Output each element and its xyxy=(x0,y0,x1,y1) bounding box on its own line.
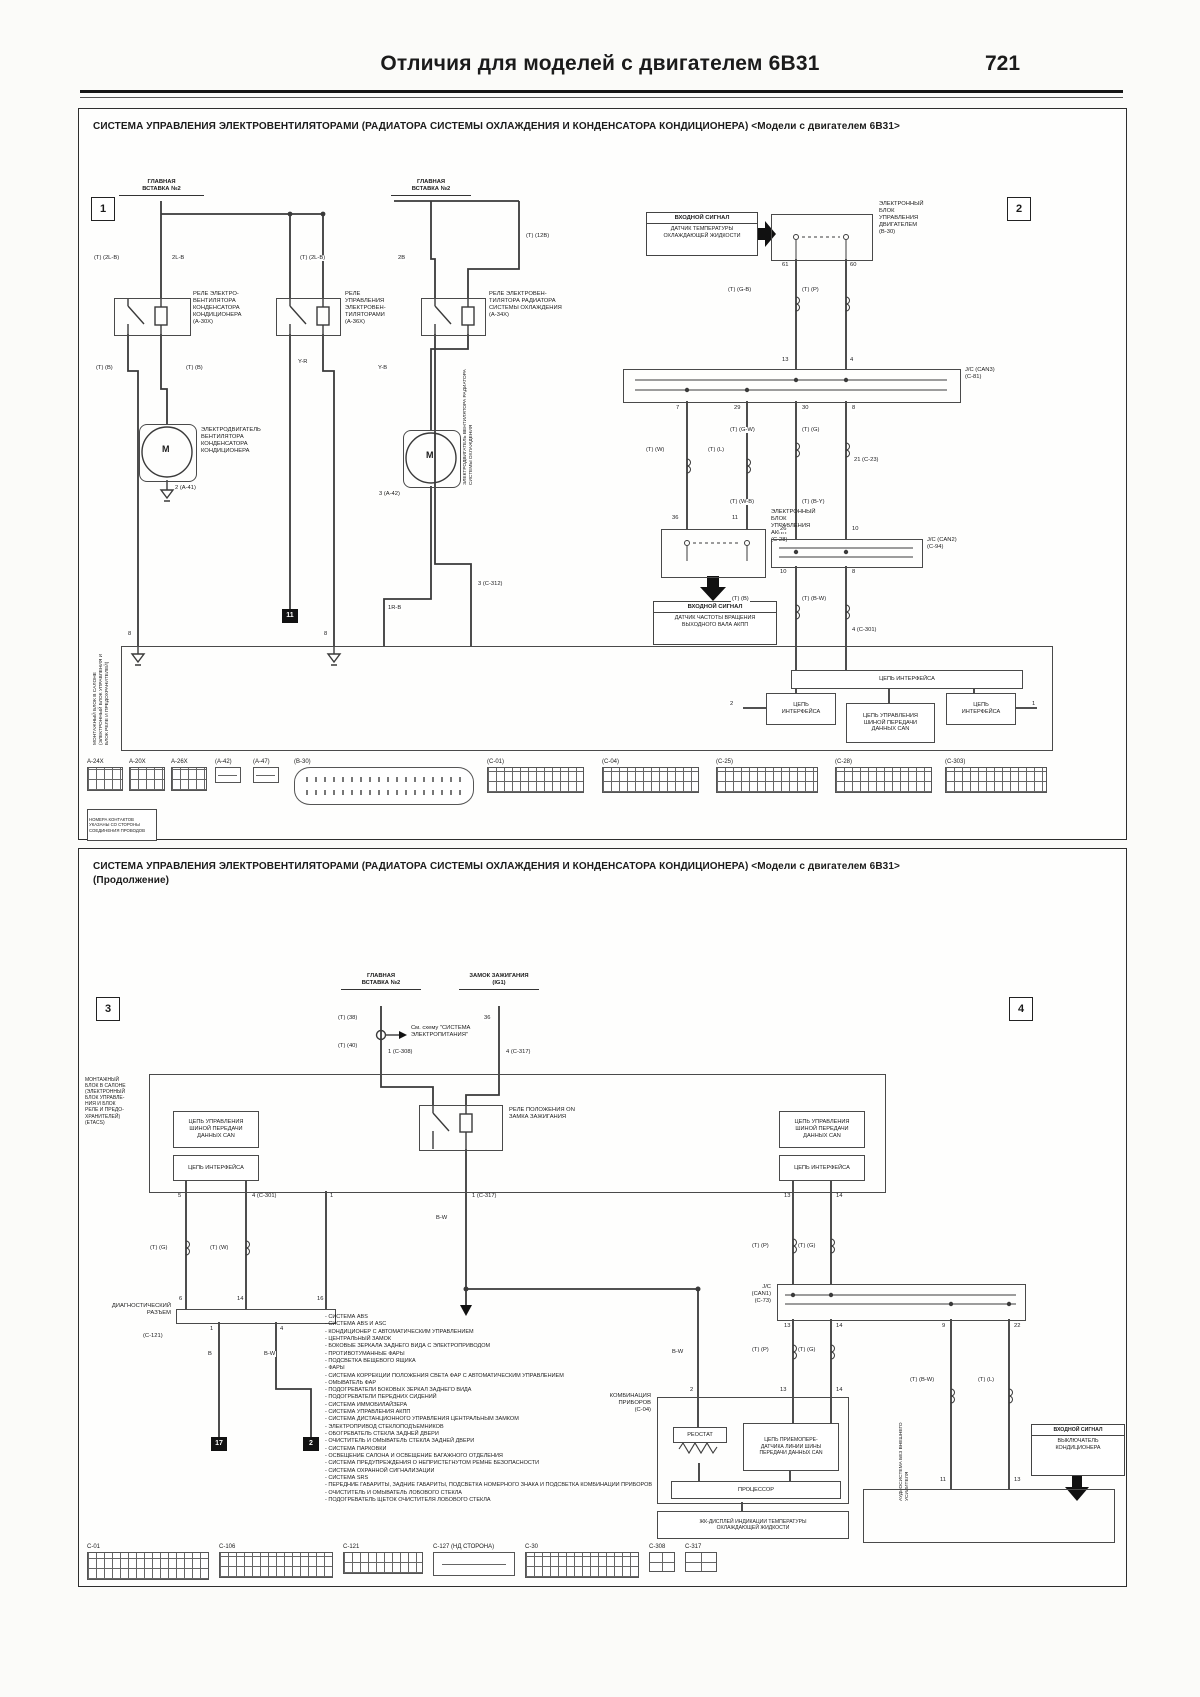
input-signal2-body: ДАТЧИК ЧАСТОТЫ ВРАЩЕНИЯ ВЫХОДНОГО ВАЛА А… xyxy=(654,613,776,631)
relay1-label: РЕЛЕ ЭЛЕКТРО- ВЕНТИЛЯТОРА КОНДЕНСАТОРА К… xyxy=(193,291,271,326)
diagram-panel-1: СИСТЕМА УПРАВЛЕНИЯ ЭЛЕКТРОВЕНТИЛЯТОРАМИ … xyxy=(78,108,1127,840)
system-list-item: - ФАРЫ xyxy=(325,1365,655,1372)
header-rule-thin xyxy=(80,97,1123,98)
wire-code-label: (Т) (P) xyxy=(751,1243,770,1249)
pin-number-label: 14 xyxy=(835,1387,843,1393)
can-transceiver-box: ЦЕПЬ ПРИЕМОПЕРЕ- ДАТЧИКА ЛИНИИ ШИНЫ ПЕРЕ… xyxy=(743,1423,839,1471)
can-control-box: ЦЕПЬ УПРАВЛЕНИЯ ШИНОЙ ПЕРЕДАЧИ ДАННЫХ CA… xyxy=(846,703,935,743)
system-list-item: - СИСТЕМА ПАРКОВКИ xyxy=(325,1446,655,1453)
diagram-section-marker-1: 1 xyxy=(91,197,115,221)
connector-label: C-106 xyxy=(219,1544,333,1550)
connector-pinout: C-308 xyxy=(649,1544,675,1572)
pin-number-label: 13 xyxy=(781,357,789,363)
pin-number-label: 1 xyxy=(329,1193,334,1199)
connector-shape-icon xyxy=(835,767,932,793)
pin-number-label: 36 xyxy=(671,515,679,521)
pin-number-label: 30 xyxy=(801,405,809,411)
pin-number-label: 14 xyxy=(835,1323,843,1329)
wire-code-label: (Т) (B) xyxy=(731,596,750,602)
pin-number-label: 8 xyxy=(127,631,132,637)
wire-code-label: (Т) (W) xyxy=(209,1245,229,1251)
connector-shape-icon xyxy=(487,767,584,793)
connector-shape-icon xyxy=(685,1552,717,1572)
input-signal-ac-box: ВХОДНОЙ СИГНАЛ ВЫКЛЮЧАТЕЛЬ КОНДИЦИОНЕРА xyxy=(1031,1424,1125,1476)
wire-code-label: (Т) (B) xyxy=(185,365,204,371)
manual-page: { "page": { "header_title": "Отличия для… xyxy=(0,0,1200,1697)
connector-shape-icon xyxy=(87,1552,209,1580)
pin-number-label: 7 xyxy=(675,405,680,411)
diagram-section-marker-3: 3 xyxy=(96,997,120,1021)
ignition-on-relay-label: РЕЛЕ ПОЛОЖЕНИЯ ON ЗАМКА ЗАЖИГАНИЯ xyxy=(509,1107,601,1121)
motor2-label: ЭЛЕКТРОДВИГАТЕЛЬ ВЕНТИЛЯТОРА РАДИАТОРА С… xyxy=(463,367,481,485)
interface-left-box: ЦЕПЬ ИНТЕРФЕЙСА xyxy=(173,1155,259,1181)
diagnostic-connector-label: ДИАГНОСТИЧЕСКИЙ РАЗЪЕМ xyxy=(105,1303,171,1317)
input-signal-body: ДАТЧИК ТЕМПЕРАТУРЫ ОХЛАЖДАЮЩЕЙ ЖИДКОСТИ xyxy=(647,224,757,242)
system-list-item: - ПОДОГРЕВАТЕЛЬ ЩЕТОК ОЧИСТИТЕЛЯ ЛОБОВОГ… xyxy=(325,1497,655,1504)
connector-pinout: A-26X xyxy=(171,759,207,791)
can-control-left-box: ЦЕПЬ УПРАВЛЕНИЯ ШИНОЙ ПЕРЕДАЧИ ДАННЫХ CA… xyxy=(173,1111,259,1148)
connector-label: C-01 xyxy=(87,1544,209,1550)
wire-code-label: (Т) (B-Y) xyxy=(801,499,826,505)
connector-label: C-308 xyxy=(649,1544,675,1550)
coolant-lcd-box: ЖК-ДИСПЛЕЙ ИНДИКАЦИИ ТЕМПЕРАТУРЫ ОХЛАЖДА… xyxy=(657,1511,849,1539)
wire-code-label: (Т) (12B) xyxy=(525,233,550,239)
connector-pinout: C-127 (НД СТОРОНА) xyxy=(433,1544,515,1576)
jc-can2-box xyxy=(771,539,923,568)
wire-code-label: (Т) (2L-B) xyxy=(299,255,326,261)
connector-label: (C-303) xyxy=(945,759,1047,765)
connector-label: C-121 xyxy=(343,1544,423,1550)
at-ecu-box xyxy=(661,529,766,578)
can-control-right-box: ЦЕПЬ УПРАВЛЕНИЯ ШИНОЙ ПЕРЕДАЧИ ДАННЫХ CA… xyxy=(779,1111,865,1148)
pin-number-label: 11 xyxy=(939,1477,947,1483)
connector-label: A-20X xyxy=(129,759,165,765)
connector-label: A-24X xyxy=(87,759,123,765)
wire-code-label: (Т) (P) xyxy=(801,287,820,293)
diagram-section-marker-2: 2 xyxy=(1007,197,1031,221)
pin-number-label: 13 xyxy=(779,1387,787,1393)
motor1-pin-label: 2 (A-41) xyxy=(175,485,196,492)
system-list-item: - БОКОВЫЕ ЗЕРКАЛА ЗАДНЕГО ВИДА С ЭЛЕКТРО… xyxy=(325,1343,655,1350)
connector-shape-icon xyxy=(294,767,474,805)
system-list-item: - СИСТЕМА КОРРЕКЦИИ ПОЛОЖЕНИЯ СВЕТА ФАР … xyxy=(325,1373,655,1380)
diagnostic-connector-ref: (C-121) xyxy=(143,1333,163,1340)
motor1-symbol-icon: M xyxy=(162,444,170,454)
pin-number-label: 22 xyxy=(1013,1323,1021,1329)
wire-code-label: (Т) (L) xyxy=(707,447,725,453)
pin-number-label: 14 xyxy=(236,1296,244,1302)
wire-code-label: (Т) (W) xyxy=(645,447,665,453)
wire-code-label: (Т) (P) xyxy=(751,1347,770,1353)
wire-code-label: 2B xyxy=(397,255,406,261)
input-signal-ac-title: ВХОДНОЙ СИГНАЛ xyxy=(1032,1425,1124,1436)
wire-code-label: (Т) (W-B) xyxy=(729,499,755,505)
pin-number-label: 1 xyxy=(209,1326,214,1332)
motor2-symbol-icon: M xyxy=(426,450,434,460)
system-list-item: - СИСТЕМА ОХРАННОЙ СИГНАЛИЗАЦИИ xyxy=(325,1468,655,1475)
pin-number-label: 4 (C-301) xyxy=(251,1193,277,1199)
pin-number-label: 8 xyxy=(323,631,328,637)
wire-code-label: (Т) (G) xyxy=(797,1347,816,1353)
connector-pinout: (A-42) xyxy=(215,759,241,783)
connector-label: (C-01) xyxy=(487,759,584,765)
connector-shape-icon xyxy=(215,767,241,783)
etacs-block-box xyxy=(149,1074,886,1193)
wire-code-label: (Т) (40) xyxy=(337,1043,358,1049)
relay2-label: РЕЛЕ УПРАВЛЕНИЯ ЭЛЕКТРОВЕН- ТИЛЯТОРАМИ (… xyxy=(345,291,417,326)
wire-code-label: 3 (C-312) xyxy=(477,581,503,587)
diagnostic-connector-box xyxy=(176,1309,336,1324)
system-list-item: - ОЧИСТИТЕЛЬ И ОМЫВАТЕЛЬ ЛОБОВОГО СТЕКЛА xyxy=(325,1490,655,1497)
connector-pinout: (C-28) xyxy=(835,759,932,793)
pin-number-label: 4 xyxy=(849,357,854,363)
system-list-item: - ЭЛЕКТРОПРИВОД СТЕКЛОПОДЪЕМНИКОВ xyxy=(325,1424,655,1431)
pin-number-label: 8 xyxy=(851,569,856,575)
wire-code-label: (Т) (L) xyxy=(977,1377,995,1383)
connector-shape-icon xyxy=(716,767,818,793)
connector-shape-icon xyxy=(219,1552,333,1578)
relay3-label: РЕЛЕ ЭЛЕКТРОВЕН- ТИЛЯТОРА РАДИАТОРА СИСТ… xyxy=(489,291,577,319)
jc-can1-label: J/C (CAN1) (C-73) xyxy=(723,1284,771,1305)
connector-shape-icon xyxy=(253,767,279,783)
system-list-item: - СИСТЕМА ПРЕДУПРЕЖДЕНИЯ О НЕПРИСТЕГНУТО… xyxy=(325,1460,655,1467)
wire-code-label: 21 (C-23) xyxy=(853,457,879,463)
connector-label: C-30 xyxy=(525,1544,639,1550)
pin-number-label: 5 xyxy=(177,1193,182,1199)
terminal-square-11: 11 xyxy=(282,609,298,623)
fusible-link-label: ГЛАВНАЯ ВСТАВКА №2 xyxy=(341,973,421,990)
wire-code-label: (Т) (B) xyxy=(95,365,114,371)
pin-number-label: 1 (C-317) xyxy=(471,1193,497,1199)
system-list-item: - СИСТЕМА ABS И ASC xyxy=(325,1321,655,1328)
jc-can3-box xyxy=(623,369,961,403)
connector-shape-icon xyxy=(525,1552,639,1578)
connector-pinout: (C-25) xyxy=(716,759,818,793)
fusible-link-label-2: ГЛАВНАЯ ВСТАВКА №2 xyxy=(391,179,471,196)
system-list-item: - ЦЕНТРАЛЬНЫЙ ЗАМОК xyxy=(325,1336,655,1343)
wire-code-label: (Т) (G-B) xyxy=(727,287,752,293)
relay1-box xyxy=(114,298,191,336)
connector-pinout: (B-30) xyxy=(294,759,474,805)
connector-label: (B-30) xyxy=(294,759,474,765)
wire-code-label: B xyxy=(207,1351,213,1357)
connector-pinout: (C-303) xyxy=(945,759,1047,793)
connector-pinout: C-121 xyxy=(343,1544,423,1574)
wire-code-label: B-W xyxy=(435,1215,448,1221)
terminal-square-2: 2 xyxy=(303,1437,319,1451)
connector-label: A-26X xyxy=(171,759,207,765)
panel1-title: СИСТЕМА УПРАВЛЕНИЯ ЭЛЕКТРОВЕНТИЛЯТОРАМИ … xyxy=(93,121,1093,132)
connector-pinout: (A-47) xyxy=(253,759,279,783)
wire-code-label: 1R-B xyxy=(387,605,402,611)
interface-right-box: ЦЕПЬ ИНТЕРФЕЙСА xyxy=(779,1155,865,1181)
pin-number-label: 1 (C-308) xyxy=(387,1049,413,1055)
processor-box: ПРОЦЕССОР xyxy=(671,1481,841,1499)
pin-number-label: 13 xyxy=(783,1323,791,1329)
interface-right-box: ЦЕПЬ ИНТЕРФЕЙСА xyxy=(946,693,1016,725)
diagram-section-marker-4: 4 xyxy=(1009,997,1033,1021)
ignition-switch-label: ЗАМОК ЗАЖИГАНИЯ (IG1) xyxy=(459,973,539,990)
instrument-cluster-label: КОМБИНАЦИЯ ПРИБОРОВ (C-04) xyxy=(581,1393,651,1414)
wire-code-label: 36 xyxy=(483,1015,491,1021)
wire-code-label: Y-B xyxy=(377,365,388,371)
pin-number-label: 10 xyxy=(779,569,787,575)
pin-number-label: 2 xyxy=(729,701,734,707)
wire-code-label: 4 (C-301) xyxy=(851,627,877,633)
connector-label: (A-47) xyxy=(253,759,279,765)
system-list-item: - ПОДСВЕТКА ВЕЩЕВОГО ЯЩИКА xyxy=(325,1358,655,1365)
connector-pinout: C-106 xyxy=(219,1544,333,1578)
interface-left-box: ЦЕПЬ ИНТЕРФЕЙСА xyxy=(766,693,836,725)
page-number: 721 xyxy=(985,52,1020,76)
audio-system-label: АУДИОСИСТЕМА БЕЗ ВНЕШНЕГО УСИЛИТЕЛЯ xyxy=(899,1405,923,1501)
pin-number-label: 26 xyxy=(779,526,787,532)
diagram-panel-2: СИСТЕМА УПРАВЛЕНИЯ ЭЛЕКТРОВЕНТИЛЯТОРАМИ … xyxy=(78,848,1127,1587)
terminal-square-17: 17 xyxy=(211,1437,227,1451)
wire-code-label: (Т) (38) xyxy=(337,1015,358,1021)
pin-number-label: 60 xyxy=(849,262,857,268)
system-list-item: - ОСВЕЩЕНИЕ САЛОНА И ОСВЕЩЕНИЕ БАГАЖНОГО… xyxy=(325,1453,655,1460)
connector-shape-icon xyxy=(602,767,699,793)
engine-ecu-label: ЭЛЕКТРОННЫЙ БЛОК УПРАВЛЕНИЯ ДВИГАТЕЛЕМ (… xyxy=(879,201,971,236)
pin-number-label: 2 xyxy=(689,1387,694,1393)
etacs-block-label: МОНТАЖНЫЙ БЛОК В САЛОНЕ (ЭЛЕКТРОННЫЙ БЛО… xyxy=(93,649,119,745)
wire-code-label: (Т) (G) xyxy=(797,1243,816,1249)
header-rule-thick xyxy=(80,90,1123,93)
wire-code-label: (Т) (B-W) xyxy=(909,1377,935,1383)
wire-code-label: B-W xyxy=(671,1349,684,1355)
system-list-item: - ОМЫВАТЕЛЬ ФАР xyxy=(325,1380,655,1387)
wire-code-label: (Т) (G) xyxy=(149,1245,168,1251)
connector-label: (C-04) xyxy=(602,759,699,765)
pin-number-label: 61 xyxy=(781,262,789,268)
pin-number-label: 14 xyxy=(835,1193,843,1199)
engine-ecu-box xyxy=(771,214,873,261)
pin-numbering-note: НОМЕРА КОНТАКТОВ УКАЗАНЫ СО СТОРОНЫ СОЕД… xyxy=(87,809,157,841)
connector-pinout: C-30 xyxy=(525,1544,639,1578)
connector-label: (C-25) xyxy=(716,759,818,765)
pin-number-label: 11 xyxy=(731,515,739,521)
system-list-item: - ПЕРЕДНИЕ ГАБАРИТЫ, ЗАДНИЕ ГАБАРИТЫ, ПО… xyxy=(325,1482,655,1489)
connector-pinout: (C-04) xyxy=(602,759,699,793)
connector-shape-icon xyxy=(129,767,165,791)
pin-number-label: 29 xyxy=(733,405,741,411)
connector-label: (C-28) xyxy=(835,759,932,765)
connector-pinout: C-317 xyxy=(685,1544,717,1572)
wire-code-label: (Т) (2L-B) xyxy=(93,255,120,261)
connector-label: (A-42) xyxy=(215,759,241,765)
system-list-item: - СИСТЕМА ДИСТАНЦИОННОГО УПРАВЛЕНИЯ ЦЕНТ… xyxy=(325,1416,655,1423)
pin-number-label: 4 xyxy=(279,1326,284,1332)
jc-can1-box xyxy=(777,1284,1026,1321)
input-signal-title: ВХОДНОЙ СИГНАЛ xyxy=(647,213,757,224)
motor2-pin-label: 3 (A-42) xyxy=(379,491,400,498)
connector-pinout: A-24X xyxy=(87,759,123,791)
connector-shape-icon xyxy=(945,767,1047,793)
connector-label: C-317 xyxy=(685,1544,717,1550)
see-power-supply-note: См. схему "СИСТЕМА ЭЛЕКТРОПИТАНИЯ" xyxy=(411,1025,521,1039)
pin-number-label: 13 xyxy=(783,1193,791,1199)
connector-pinout: A-20X xyxy=(129,759,165,791)
input-signal-coolant-box: ВХОДНОЙ СИГНАЛ ДАТЧИК ТЕМПЕРАТУРЫ ОХЛАЖД… xyxy=(646,212,758,256)
wire-code-label: B-W xyxy=(263,1351,276,1357)
pin-number-label: 1 xyxy=(1031,701,1036,707)
connector-label: C-127 (НД СТОРОНА) xyxy=(433,1544,515,1550)
pin-number-label: 8 xyxy=(851,405,856,411)
system-list-item: - СИСТЕМА ABS xyxy=(325,1314,655,1321)
input-signal2-title: ВХОДНОЙ СИГНАЛ xyxy=(654,602,776,613)
connector-pinout: C-01 xyxy=(87,1544,209,1580)
system-list-item: - ПРОТИВОТУМАННЫЕ ФАРЫ xyxy=(325,1351,655,1358)
wire-code-label: Y-R xyxy=(297,359,308,365)
relay3-box xyxy=(421,298,486,336)
pin-number-label: 9 xyxy=(941,1323,946,1329)
input-signal-output-shaft-box: ВХОДНОЙ СИГНАЛ ДАТЧИК ЧАСТОТЫ ВРАЩЕНИЯ В… xyxy=(653,601,777,645)
interface-wide-box: ЦЕПЬ ИНТЕРФЕЙСА xyxy=(791,670,1023,689)
pin-number-label: 10 xyxy=(851,526,859,532)
pin-number-label: 4 (C-317) xyxy=(505,1049,531,1055)
wire-code-label: 2L-B xyxy=(171,255,185,261)
fusible-link-label-1: ГЛАВНАЯ ВСТАВКА №2 xyxy=(119,179,204,196)
connector-shape-icon xyxy=(649,1552,675,1572)
pin-number-label: 13 xyxy=(1013,1477,1021,1483)
pin-number-label: 6 xyxy=(178,1296,183,1302)
panel2-subtitle: (Продолжение) xyxy=(93,875,169,886)
etacs-block-label: МОНТАЖНЫЙ БЛОК В САЛОНЕ (ЭЛЕКТРОННЫЙ БЛО… xyxy=(85,1077,145,1126)
connector-shape-icon xyxy=(433,1552,515,1576)
audio-unit-box xyxy=(863,1489,1115,1543)
input-signal-ac-body: ВЫКЛЮЧАТЕЛЬ КОНДИЦИОНЕРА xyxy=(1032,1436,1124,1454)
relay2-box xyxy=(276,298,341,336)
connector-pinout: (C-01) xyxy=(487,759,584,793)
wire-code-label: (Т) (B-W) xyxy=(801,596,827,602)
wire-code-label: (Т) (G) xyxy=(801,427,820,433)
ignition-on-relay-box xyxy=(419,1105,503,1151)
connector-shape-icon xyxy=(171,767,207,791)
wire-code-label: (Т) (G-W) xyxy=(729,427,756,433)
system-list-item: - ОЧИСТИТЕЛЬ И ОМЫВАТЕЛЬ СТЕКЛА ЗАДНЕЙ Д… xyxy=(325,1438,655,1445)
system-list-item: - СИСТЕМА SRS xyxy=(325,1475,655,1482)
rheostat-box: РЕОСТАТ xyxy=(673,1427,727,1443)
jc-can2-label: J/C (CAN2) (C-94) xyxy=(927,537,991,551)
connector-shape-icon xyxy=(87,767,123,791)
panel2-title: СИСТЕМА УПРАВЛЕНИЯ ЭЛЕКТРОВЕНТИЛЯТОРАМИ … xyxy=(93,861,1103,872)
motor1-label: ЭЛЕКТРОДВИГАТЕЛЬ ВЕНТИЛЯТОРА КОНДЕНСАТОР… xyxy=(201,427,287,455)
pin-number-label: 16 xyxy=(316,1296,324,1302)
jc-can3-label: J/C (CAN3) (C-81) xyxy=(965,367,1029,381)
connector-shape-icon xyxy=(343,1552,423,1574)
system-list-item: - КОНДИЦИОНЕР С АВТОМАТИЧЕСКИМ УПРАВЛЕНИ… xyxy=(325,1329,655,1336)
